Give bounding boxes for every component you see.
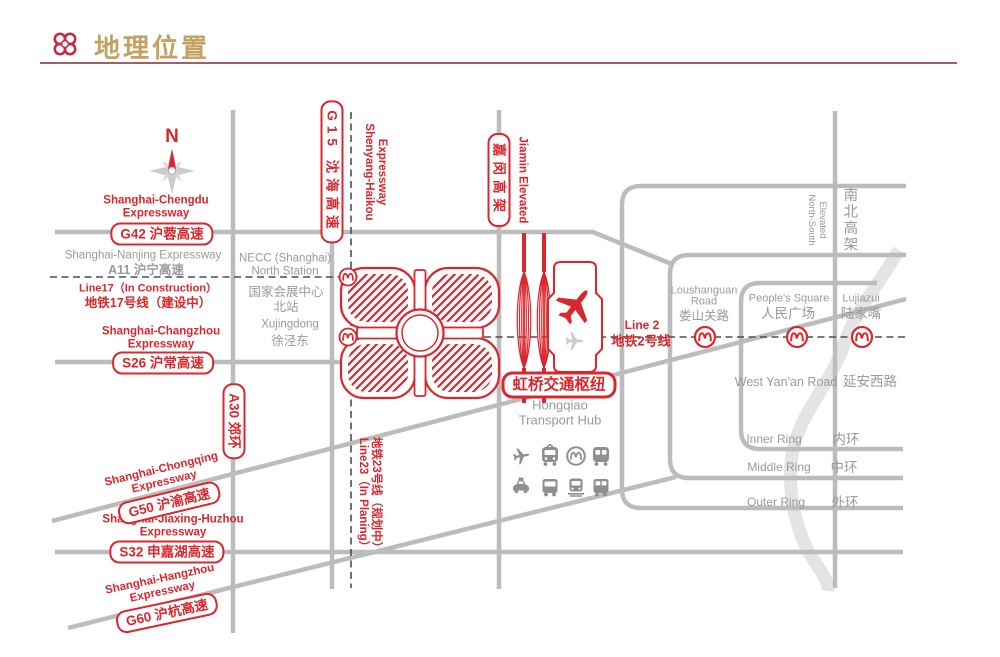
peoples-square-cn: 人民广场 [761, 306, 815, 322]
jiamin-name-en: Jiamin Elevated [515, 137, 528, 224]
a11-name-en: Shanghai-Nanjing Expressway [65, 249, 222, 262]
lujiazui-en: Lujiazui [842, 293, 879, 306]
airport-terminal-outline [548, 262, 602, 372]
intercity-rail-icon [593, 447, 609, 466]
metro-station-icon-line17 [340, 269, 357, 286]
line2-label-en: Line 2 [625, 319, 660, 333]
s26-shield: S26 沪常高速 [112, 352, 214, 375]
a11-code: A11 沪宁高速 [108, 263, 184, 277]
g42-name-en-line1: Shanghai-Chengdu [103, 194, 208, 207]
tram-icon [568, 479, 584, 497]
line17-label-en: Line17（In Construction） [79, 283, 217, 296]
necc-station-cn-line1: 国家会展中心 [248, 285, 323, 299]
g15-shield: G15 沈海高速 [321, 100, 344, 243]
line23-label-en: Line23（In Planing） [356, 437, 369, 553]
necc-station-cn-line2: 北站 [273, 300, 298, 314]
compass-rose [149, 148, 195, 194]
line23-label: 地铁23号线（规划中） Line23（In Planing） [356, 437, 382, 553]
metro-station-icon-necc [340, 329, 357, 346]
line23-label-cn: 地铁23号线（规划中） [369, 437, 382, 553]
outer-ring-en: Outer Ring [747, 496, 805, 510]
g42-name-en-line2: Expressway [123, 207, 190, 220]
west-yanan-en: West Yan'an Road [735, 375, 837, 389]
necc-station-en-line1: NECC (Shanghai) [239, 252, 331, 265]
s26-name-en-line2: Expressway [128, 338, 195, 351]
line2-label-cn: 地铁2号线 [611, 335, 670, 350]
inner-ring-en: Inner Ring [746, 433, 801, 447]
compass-north-label: N [165, 126, 179, 148]
lujiazui-cn: 陆家嘴 [841, 306, 882, 322]
west-yanan-cn: 延安西路 [843, 374, 897, 390]
north-south-en-line2: Elevated [816, 194, 827, 245]
high-speed-rail-icon [542, 445, 558, 466]
middle-ring-en: Middle Ring [747, 461, 810, 475]
page-title: 地理位置 [94, 28, 210, 65]
peoples-square-en: People's Square [749, 293, 829, 306]
g15-name-en-line2: Expressway [375, 123, 388, 220]
metro-station-icon-loushanguan [695, 327, 715, 347]
middle-ring-cn: 中环 [831, 460, 858, 476]
loushanguan-cn: 娄山关路 [679, 309, 729, 323]
north-south-en-line1: North-South [805, 194, 816, 245]
hongqiao-hub-en-line2: Transport Hub [519, 414, 602, 429]
inner-ring-cn: 内环 [833, 432, 860, 448]
north-south-name-en: Elevated North-South [805, 194, 827, 245]
xujingdong-en: Xujingdong [261, 318, 319, 331]
necc-clover [341, 268, 499, 398]
line17-label-cn: 地铁17号线（建设中） [85, 296, 211, 310]
g42-shield: G42 沪蓉高速 [110, 223, 213, 246]
hongqiao-hub-en-line1: Hongqiao [532, 399, 588, 414]
loushanguan-en-line2: Road [691, 296, 717, 309]
outer-ring-cn: 外环 [832, 495, 859, 511]
s26-name-en-line1: Shanghai-Changzhou [102, 325, 220, 338]
s32-name-en-line2: Expressway [140, 526, 207, 539]
metro-gray-icon [567, 447, 585, 465]
g15-name-en-line1: Shenyang-Haikou [362, 123, 375, 220]
xujingdong-cn: 徐泾东 [271, 334, 309, 348]
metro-station-icon-lujiazui [852, 327, 872, 347]
jiamin-shield: 嘉闵高架 [488, 133, 511, 227]
s32-shield: S32 申嘉湖高速 [109, 541, 224, 564]
taxi-icon [513, 478, 529, 494]
hongqiao-hub-shield: 虹桥交通枢纽 [501, 372, 616, 399]
bus-icon [543, 479, 558, 496]
airplane-small-icon [512, 447, 531, 466]
necc-station-en-line2: North Station [251, 265, 318, 278]
north-south-name-cn: 南北高架 [841, 187, 858, 253]
g15-name-en: Expressway Shenyang-Haikou [362, 123, 388, 220]
hub-transport-icons [512, 445, 609, 497]
necc-clover-logo-icon [50, 29, 80, 59]
page: { "header": { "title": "地理位置" }, "compas… [0, 0, 1000, 657]
a30-shield: A30 郊环 [223, 383, 246, 459]
metro-station-icon-peoples-square [787, 327, 807, 347]
